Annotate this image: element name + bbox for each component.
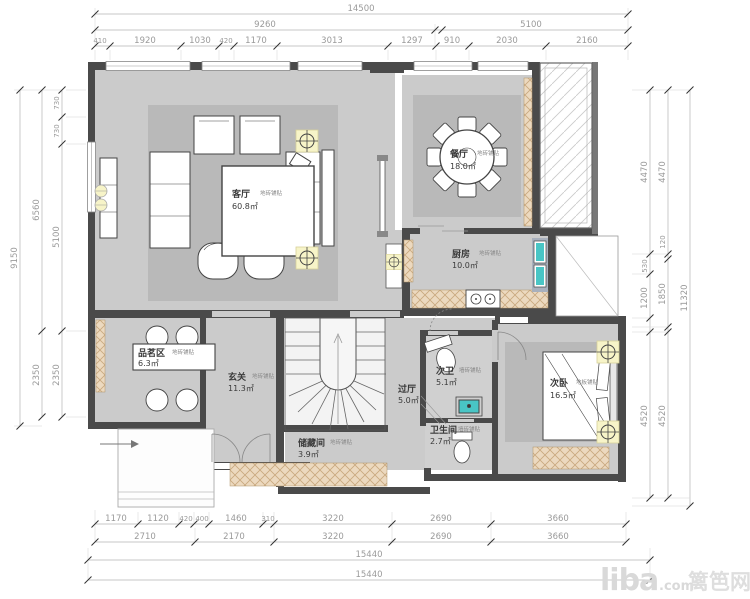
svg-text:4470: 4470 [640,161,650,183]
lamp-icon [597,421,619,443]
svg-text:730: 730 [53,124,61,137]
svg-text:16.5㎡: 16.5㎡ [550,391,576,400]
watermark: liba .com 篱笆网 [600,563,750,598]
svg-text:2710: 2710 [134,532,156,542]
kitchen-sink [536,243,544,261]
svg-text:1200: 1200 [640,287,650,309]
svg-text:3220: 3220 [322,514,344,524]
svg-text:墙砖铺贴: 墙砖铺贴 [458,425,481,433]
svg-text:6560: 6560 [32,199,42,221]
svg-text:120: 120 [659,235,667,248]
svg-text:地板铺贴: 地板铺贴 [576,378,599,386]
tea-label: 品茗区 [138,347,165,359]
lamp-icon [386,254,401,269]
svg-text:2350: 2350 [32,364,42,386]
svg-text:420: 420 [179,515,192,523]
svg-text:730: 730 [53,96,61,109]
storage-label: 储藏间 [298,437,325,449]
svg-text:2160: 2160 [576,36,598,46]
svg-text:2170: 2170 [223,532,245,542]
dimensions-top: 14500 9260 5100 410 1920 1030 420 1170 3… [92,4,632,60]
svg-text:14500: 14500 [347,4,374,14]
equipment-platform [556,236,618,316]
svg-text:910: 910 [444,36,460,46]
svg-text:4470: 4470 [658,161,668,183]
floor-plan-page: 客厅 地砖铺贴 60.8㎡ 餐厅 地砖铺贴 18.0㎡ 厨房 地砖铺贴 10.0… [0,0,750,599]
svg-text:15440: 15440 [355,570,382,580]
svg-text:2.7㎡: 2.7㎡ [430,437,451,446]
svg-text:2030: 2030 [496,36,518,46]
bath2-label: 次卫 [436,365,454,377]
sofa-left [150,152,190,248]
coffee-table [222,166,314,256]
svg-text:地砖铺贴: 地砖铺贴 [252,372,275,380]
svg-text:2690: 2690 [430,532,452,542]
svg-text:1170: 1170 [105,514,127,524]
dining-label: 餐厅 [449,148,468,160]
hall-label: 过厅 [398,383,416,395]
svg-text:地砖铺贴: 地砖铺贴 [477,149,500,157]
svg-text:15440: 15440 [355,550,382,560]
svg-text:3.9㎡: 3.9㎡ [298,450,319,459]
lamp-icon [296,130,318,152]
floor-plan-drawing: 客厅 地砖铺贴 60.8㎡ 餐厅 地砖铺贴 18.0㎡ 厨房 地砖铺贴 10.0… [0,0,750,599]
shoe-cabinet [230,463,387,486]
foyer-label: 玄关 [228,371,246,383]
living-label: 客厅 [231,188,250,200]
svg-text:3660: 3660 [547,532,569,542]
svg-text:4520: 4520 [658,405,668,427]
svg-text:530: 530 [641,259,649,272]
svg-text:400: 400 [195,515,208,523]
svg-text:5100: 5100 [52,226,62,248]
stool [176,389,198,411]
bathroom-label: 卫生间 [430,424,457,436]
svg-text:9150: 9150 [10,247,20,269]
dining-cabinet [524,78,532,226]
svg-text:9260: 9260 [254,20,276,30]
svg-text:地砖铺贴: 地砖铺贴 [260,189,283,197]
dimensions-right: 4470 530 1200 4520 4470 120 1850 4520 11… [632,87,694,510]
svg-text:60.8㎡: 60.8㎡ [232,202,258,211]
watermark-site: 篱笆网 [688,570,750,594]
svg-text:1120: 1120 [147,514,169,524]
lamp-icon [296,247,318,269]
entry-porch [100,429,214,507]
svg-text:3660: 3660 [547,514,569,524]
svg-text:1030: 1030 [189,36,211,46]
bedroom-closet [533,447,609,469]
svg-text:11320: 11320 [680,284,690,311]
svg-text:5.0㎡: 5.0㎡ [398,396,419,405]
kitchen-cabinet [404,240,413,282]
svg-text:5.1㎡: 5.1㎡ [436,378,457,387]
stool [146,389,168,411]
svg-text:1460: 1460 [225,514,247,524]
svg-text:6.3㎡: 6.3㎡ [138,359,159,368]
bedroom2-label: 次卧 [550,377,568,389]
svg-text:10.0㎡: 10.0㎡ [452,261,478,270]
svg-text:410: 410 [93,37,106,45]
svg-text:地砖铺贴: 地砖铺贴 [172,348,195,356]
balcony [540,63,592,228]
svg-text:1170: 1170 [245,36,267,46]
svg-text:墙砖铺贴: 墙砖铺贴 [459,366,482,374]
dimensions-left: 9150 6560 2350 730 730 5100 2350 [10,87,86,430]
svg-text:310: 310 [261,515,274,523]
armchair [194,116,234,154]
svg-text:2690: 2690 [430,514,452,524]
console-table [322,150,334,246]
svg-text:地砖铺贴: 地砖铺贴 [479,249,502,257]
svg-text:4520: 4520 [640,405,650,427]
toilet [454,441,470,463]
svg-text:5100: 5100 [520,20,542,30]
dimensions-bottom: 1170 1120 420 400 1460 310 3220 2690 366… [85,510,654,584]
svg-text:1920: 1920 [134,36,156,46]
kitchen-sink [536,267,544,285]
svg-text:地砖铺贴: 地砖铺贴 [330,438,353,446]
lamp-icon [597,341,619,363]
svg-text:1297: 1297 [401,36,423,46]
watermark-logo: liba [600,563,658,598]
svg-text:3013: 3013 [321,36,343,46]
svg-text:11.3㎡: 11.3㎡ [228,384,254,393]
tea-cabinet [96,320,105,392]
svg-text:420: 420 [219,37,232,45]
svg-text:18.0㎡: 18.0㎡ [450,162,476,171]
armchair [240,116,280,154]
svg-text:2350: 2350 [52,364,62,386]
svg-text:3220: 3220 [322,532,344,542]
kitchen-label: 厨房 [452,248,470,260]
bookshelf [100,158,117,238]
svg-text:1850: 1850 [658,283,668,305]
